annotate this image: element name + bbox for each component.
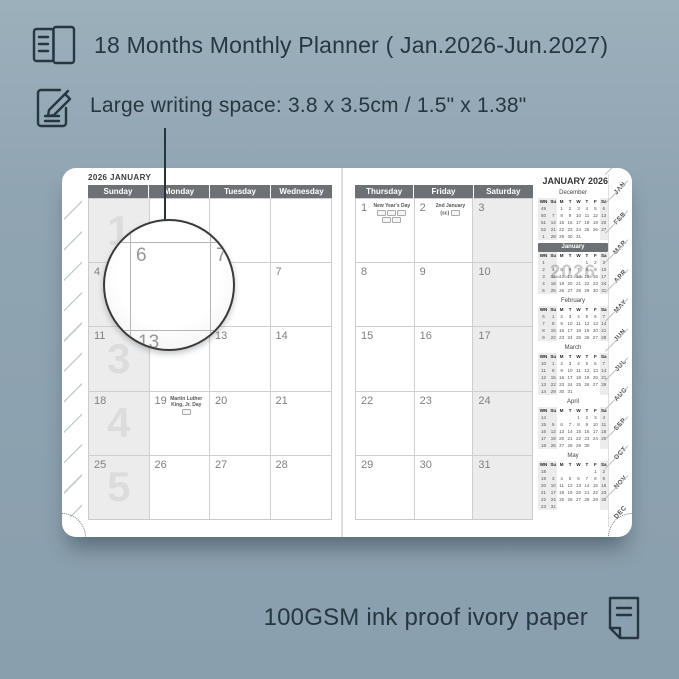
mini-day-cell: 16 — [557, 327, 565, 334]
mini-header-cell: WN — [538, 198, 549, 205]
calendar-cell: 1New Year's Day — [356, 198, 415, 262]
mini-day-cell: 4 — [549, 266, 557, 273]
mini-day-cell — [557, 468, 565, 475]
mini-day-cell: 30 — [557, 388, 565, 395]
page-edge-hatching — [64, 190, 82, 517]
mini-day-cell: 52 — [538, 226, 549, 233]
calendar-cell: 418 — [89, 391, 150, 455]
left-page: 2026 JANUARY SundayMondayTuesdayWednesda… — [62, 168, 342, 537]
mini-day-cell: 7 — [600, 360, 608, 367]
mini-header-cell: F — [591, 198, 599, 205]
mini-day-cell: 2 — [557, 313, 565, 320]
mini-month-grid: WNSuMTWTFSa11232456789103111213141516174… — [538, 252, 608, 294]
planner-book-icon — [30, 24, 78, 66]
mini-day-cell: 51 — [538, 219, 549, 226]
mini-day-cell — [557, 414, 565, 421]
mini-day-cell: 13 — [557, 428, 565, 435]
mini-day-cell: 13 — [538, 381, 549, 388]
mini-header-cell: T — [583, 306, 591, 313]
mini-day-cell: 13 — [566, 273, 574, 280]
mini-day-cell — [583, 503, 591, 510]
mini-day-cell: 9 — [538, 334, 549, 341]
mini-day-cell: 28 — [549, 233, 557, 240]
mini-day-cell: 10 — [591, 421, 599, 428]
mini-header-cell: M — [557, 306, 565, 313]
mini-day-cell: 14 — [538, 388, 549, 395]
mini-day-cell: 17 — [591, 428, 599, 435]
paper-sheet-icon — [603, 594, 645, 642]
mini-day-cell: 49 — [538, 205, 549, 212]
mini-day-cell: 8 — [574, 421, 582, 428]
mini-day-cell: 10 — [600, 266, 608, 273]
mini-day-cell: 20 — [538, 482, 549, 489]
mini-month: AprilWNSuMTWTFSa141234155678910111612131… — [538, 398, 608, 449]
mini-day-cell: 6 — [566, 266, 574, 273]
mini-day-cell: 27 — [574, 496, 582, 503]
mini-header-cell: Su — [549, 407, 557, 414]
mini-day-cell: 15 — [538, 421, 549, 428]
mini-day-cell: 24 — [566, 334, 574, 341]
mini-day-cell: 30 — [583, 442, 591, 449]
mini-day-cell: 8 — [591, 475, 599, 482]
mini-day-cell: 31 — [566, 388, 574, 395]
mini-day-cell: 26 — [583, 381, 591, 388]
mini-day-cell: 11 — [574, 367, 582, 374]
mini-day-cell: 29 — [591, 496, 599, 503]
mini-day-cell: 19 — [583, 327, 591, 334]
mini-day-cell: 21 — [600, 327, 608, 334]
mini-day-cell: 19 — [557, 280, 565, 287]
calendar-cell: 7 — [271, 262, 332, 326]
mini-day-cell: 25 — [557, 496, 565, 503]
mini-day-cell: 23 — [591, 280, 599, 287]
mini-day-cell: 23 — [566, 226, 574, 233]
mini-day-cell: 12 — [538, 374, 549, 381]
mini-day-cell: 9 — [557, 320, 565, 327]
mini-day-cell: 18 — [538, 442, 549, 449]
mini-header-cell: M — [557, 198, 565, 205]
mini-day-cell: 29 — [557, 233, 565, 240]
mini-day-cell: 3 — [538, 273, 549, 280]
mini-day-cell — [566, 414, 574, 421]
mini-day-cell: 17 — [574, 219, 582, 226]
mini-day-cell: 5 — [583, 313, 591, 320]
mini-day-cell: 20 — [600, 219, 608, 226]
mini-day-cell — [574, 259, 582, 266]
date-number: 8 — [361, 266, 367, 278]
mini-day-cell: 5 — [557, 266, 565, 273]
mini-day-cell: 22 — [591, 489, 599, 496]
mini-day-cell: 1 — [549, 313, 557, 320]
mini-day-cell: 17 — [549, 489, 557, 496]
mini-day-cell: 7 — [549, 212, 557, 219]
right-week-grid: 1New Year's Day 22nd January (sc) 389101… — [355, 198, 533, 520]
magnified-grid-line — [105, 242, 233, 243]
date-number: 16 — [420, 330, 432, 342]
mini-month-grid: WNSuMTWTFSa14123415567891011161213141516… — [538, 407, 608, 449]
calendar-cell: 31 — [473, 455, 532, 519]
right-day-header-row: ThursdayFridaySaturday — [355, 185, 533, 198]
mini-day-cell: 15 — [557, 219, 565, 226]
mini-month-name: April — [538, 398, 608, 407]
mini-day-cell — [600, 388, 608, 395]
mini-day-cell: 14 — [600, 367, 608, 374]
mini-month-name: March — [538, 344, 608, 353]
mini-day-cell: 8 — [549, 367, 557, 374]
mini-header-cell: F — [591, 252, 599, 259]
mini-day-cell — [549, 414, 557, 421]
mini-day-cell: 7 — [538, 320, 549, 327]
calendar-cell: 14 — [271, 326, 332, 390]
mini-day-cell: 10 — [549, 482, 557, 489]
mini-day-cell: 4 — [600, 414, 608, 421]
mini-month-name: January — [538, 243, 608, 252]
mini-day-cell — [566, 468, 574, 475]
mini-day-cell: 8 — [557, 212, 565, 219]
mini-day-cell: 4 — [574, 313, 582, 320]
mini-header-cell: WN — [538, 407, 549, 414]
mini-day-cell: 2 — [557, 360, 565, 367]
mini-day-cell: 18 — [574, 374, 582, 381]
mini-month-grid: WNSuMTWTFSa18121934567892010111213141516… — [538, 461, 608, 510]
date-number: 20 — [215, 395, 227, 407]
mini-day-cell: 11 — [574, 320, 582, 327]
date-number: 17 — [478, 330, 490, 342]
month-tab-strip: JANFEBMARAPRMAYJUNJULAUGSEPOCTNOVDEC — [608, 174, 632, 527]
mini-day-cell — [557, 259, 565, 266]
day-header: Friday — [414, 185, 473, 198]
mini-calendar-list: DecemberWNSuMTWTFSa491234565078910111213… — [538, 189, 608, 510]
magnified-date: 14 — [217, 332, 235, 351]
magnified-date: 6 — [136, 245, 147, 267]
mini-day-cell — [600, 233, 608, 240]
mini-header-cell: T — [566, 407, 574, 414]
mini-day-cell: 22 — [583, 280, 591, 287]
mini-day-cell: 28 — [574, 287, 582, 294]
mini-header-cell: F — [591, 407, 599, 414]
date-number: 25 — [94, 459, 106, 471]
mini-header-cell: T — [566, 198, 574, 205]
calendar-cell: 9 — [415, 262, 474, 326]
mini-header-cell: Su — [549, 198, 557, 205]
mini-day-cell: 13 — [574, 482, 582, 489]
mini-header-cell: W — [574, 353, 582, 360]
date-number: 24 — [478, 395, 490, 407]
mini-day-cell: 23 — [557, 381, 565, 388]
mini-day-cell: 26 — [566, 496, 574, 503]
mini-header-cell: W — [574, 198, 582, 205]
mini-day-cell: 24 — [566, 381, 574, 388]
date-number: 4 — [94, 266, 100, 278]
mini-header-cell: Su — [549, 461, 557, 468]
mini-day-cell: 5 — [538, 287, 549, 294]
mini-header-cell: T — [566, 252, 574, 259]
mini-day-cell: 20 — [574, 489, 582, 496]
paper-feature-text: 100GSM ink proof ivory paper — [264, 604, 588, 632]
mini-day-cell: 22 — [557, 226, 565, 233]
calendar-cell: 3 — [473, 198, 532, 262]
mini-day-cell: 21 — [574, 280, 582, 287]
mini-day-cell: 7 — [583, 475, 591, 482]
calendar-cell: 525 — [89, 455, 150, 519]
mini-header-cell: W — [574, 461, 582, 468]
holiday-region-badge — [377, 210, 386, 217]
mini-day-cell: 11 — [549, 273, 557, 280]
mini-day-cell: 21 — [566, 435, 574, 442]
mini-day-cell: 11 — [583, 212, 591, 219]
date-number: 2 — [420, 202, 426, 214]
holiday-region-badge — [387, 210, 396, 217]
mini-day-cell: 20 — [557, 435, 565, 442]
date-number: 23 — [420, 395, 432, 407]
mini-day-cell: 23 — [538, 503, 549, 510]
date-number: 22 — [361, 395, 373, 407]
mini-day-cell: 17 — [566, 374, 574, 381]
mini-day-cell — [574, 503, 582, 510]
mini-header-cell: F — [591, 306, 599, 313]
mini-month: MayWNSuMTWTFSa18121934567892010111213141… — [538, 452, 608, 510]
mini-header-cell: T — [566, 461, 574, 468]
mini-month-name: May — [538, 452, 608, 461]
date-number: 28 — [276, 459, 288, 471]
mini-day-cell: 30 — [566, 233, 574, 240]
mini-month-name: December — [538, 189, 608, 198]
mini-day-cell: 22 — [538, 496, 549, 503]
page-gutter — [341, 168, 343, 537]
mini-day-cell: 10 — [538, 360, 549, 367]
day-header: Thursday — [355, 185, 414, 198]
mini-day-cell: 5 — [566, 475, 574, 482]
mini-day-cell: 26 — [557, 287, 565, 294]
holiday-label: Martin Luther King, Jr. Day — [166, 396, 208, 416]
mini-day-cell: 30 — [591, 287, 599, 294]
mini-header-cell: W — [574, 407, 582, 414]
mini-day-cell — [557, 503, 565, 510]
mini-day-cell: 26 — [591, 226, 599, 233]
mini-day-cell: 15 — [591, 482, 599, 489]
mini-day-cell: 24 — [574, 226, 582, 233]
mini-day-cell: 24 — [600, 280, 608, 287]
date-number: 10 — [478, 266, 490, 278]
mini-calendar-column: JANUARY 2026 DecemberWNSuMTWTFSa49123456… — [538, 176, 608, 522]
mini-header-cell: Su — [549, 306, 557, 313]
mini-day-cell: 16 — [538, 428, 549, 435]
mini-header-cell: T — [583, 353, 591, 360]
calendar-cell: 27 — [210, 455, 271, 519]
mini-day-cell: 10 — [574, 212, 582, 219]
mini-header-cell: F — [591, 353, 599, 360]
mini-header-cell: T — [583, 461, 591, 468]
mini-day-cell: 14 — [600, 320, 608, 327]
mini-day-cell: 16 — [566, 219, 574, 226]
mini-month-grid: WNSuMTWTFSa49123456507891011121351141516… — [538, 198, 608, 240]
mini-day-cell: 18 — [583, 219, 591, 226]
mini-month: FebruaryWNSuMTWTFSa612345677891011121314… — [538, 297, 608, 341]
mini-day-cell: 21 — [538, 489, 549, 496]
mini-day-cell: 3 — [566, 313, 574, 320]
mini-day-cell: 16 — [583, 428, 591, 435]
mini-header-cell: M — [557, 353, 565, 360]
day-header: Monday — [149, 185, 210, 198]
mini-month-grid: WNSuMTWTFSa10123456711891011121314121516… — [538, 353, 608, 395]
mini-day-cell: 27 — [557, 442, 565, 449]
mini-day-cell: 25 — [583, 226, 591, 233]
mini-day-cell: 9 — [566, 212, 574, 219]
mini-day-cell: 14 — [566, 428, 574, 435]
mini-month-name: February — [538, 297, 608, 306]
magnified-grid-line — [105, 330, 233, 331]
writing-pencil-icon — [32, 82, 74, 130]
calendar-cell: 28 — [271, 455, 332, 519]
mini-day-cell — [583, 468, 591, 475]
mini-header-cell: W — [574, 252, 582, 259]
date-number: 29 — [361, 459, 373, 471]
mini-day-cell: 2 — [583, 414, 591, 421]
mini-day-cell: 24 — [591, 435, 599, 442]
calendar-cell: 24 — [473, 391, 532, 455]
date-number: 21 — [276, 395, 288, 407]
date-number: 18 — [94, 395, 106, 407]
mini-header-cell: M — [557, 407, 565, 414]
feature-row: Large writing space: 3.8 x 3.5cm / 1.5" … — [32, 82, 526, 130]
holiday-label: New Year's Day — [372, 203, 412, 224]
mini-day-cell: 19 — [566, 489, 574, 496]
date-number: 14 — [276, 330, 288, 342]
mini-header-cell: WN — [538, 306, 549, 313]
mini-header-cell: WN — [538, 353, 549, 360]
mini-header-cell: T — [583, 198, 591, 205]
mini-header-cell: Sa — [600, 306, 608, 313]
date-number: 1 — [361, 202, 367, 214]
mini-day-cell: 22 — [549, 334, 557, 341]
mini-day-cell: 10 — [566, 367, 574, 374]
calendar-cell — [271, 198, 332, 262]
mini-day-cell: 12 — [583, 367, 591, 374]
mini-day-cell: 6 — [591, 360, 599, 367]
mini-day-cell: 12 — [557, 273, 565, 280]
mini-day-cell: 26 — [583, 334, 591, 341]
mini-day-cell: 19 — [591, 219, 599, 226]
mini-day-cell: 22 — [574, 435, 582, 442]
mini-day-cell: 27 — [591, 381, 599, 388]
mini-day-cell: 9 — [600, 475, 608, 482]
mini-day-cell: 17 — [566, 327, 574, 334]
mini-day-cell: 18 — [557, 489, 565, 496]
mini-day-cell: 14 — [574, 273, 582, 280]
holiday-region-badge — [382, 217, 391, 224]
mini-day-cell: 27 — [566, 287, 574, 294]
calendar-cell: 30 — [415, 455, 474, 519]
mini-month-grid: WNSuMTWTFSa61234567789101112131481516171… — [538, 306, 608, 341]
holiday-label: 2nd January (sc) — [431, 203, 471, 217]
calendar-cell: 20 — [210, 391, 271, 455]
mini-day-cell: 20 — [591, 327, 599, 334]
mini-day-cell: 19 — [549, 435, 557, 442]
mini-day-cell: 13 — [600, 212, 608, 219]
mini-day-cell: 28 — [583, 496, 591, 503]
mini-day-cell: 29 — [549, 388, 557, 395]
mini-day-cell — [583, 233, 591, 240]
mini-day-cell: 31 — [549, 503, 557, 510]
mini-day-cell: 6 — [600, 205, 608, 212]
mini-day-cell: 9 — [557, 367, 565, 374]
mini-day-cell: 1 — [583, 259, 591, 266]
mini-day-cell: 11 — [538, 367, 549, 374]
right-month-grid: ThursdayFridaySaturday 1New Year's Day 2… — [355, 185, 533, 520]
callout-connector-line — [164, 128, 166, 220]
mini-day-cell: 6 — [538, 313, 549, 320]
mini-day-cell: 20 — [566, 280, 574, 287]
holiday-region-badge — [182, 409, 191, 416]
mini-day-cell — [583, 388, 591, 395]
mini-day-cell: 2 — [538, 266, 549, 273]
mini-day-cell: 16 — [557, 374, 565, 381]
mini-day-cell — [591, 233, 599, 240]
mini-day-cell: 13 — [591, 320, 599, 327]
mini-day-cell: 1 — [538, 259, 549, 266]
mini-header-cell: WN — [538, 252, 549, 259]
day-header: Saturday — [474, 185, 533, 198]
mini-month: JanuaryWNSuMTWTFSa1123245678910311121314… — [538, 243, 608, 294]
mini-day-cell: 14 — [549, 219, 557, 226]
mini-day-cell: 3 — [549, 475, 557, 482]
mini-day-cell: 11 — [600, 421, 608, 428]
mini-day-cell: 4 — [583, 205, 591, 212]
mini-day-cell: 26 — [549, 442, 557, 449]
mini-day-cell: 23 — [557, 334, 565, 341]
mini-day-cell: 13 — [591, 367, 599, 374]
mini-day-cell — [549, 259, 557, 266]
mini-header-cell: T — [583, 252, 591, 259]
mini-day-cell: 25 — [574, 381, 582, 388]
calendar-cell: 16 — [415, 326, 474, 390]
calendar-cell: 8 — [356, 262, 415, 326]
mini-day-cell: 15 — [583, 273, 591, 280]
mini-day-cell: 19 — [538, 475, 549, 482]
mini-day-cell: 28 — [600, 381, 608, 388]
mini-day-cell — [549, 205, 557, 212]
date-number: 7 — [276, 266, 282, 278]
mini-day-cell: 17 — [600, 273, 608, 280]
mini-day-cell: 8 — [583, 266, 591, 273]
day-header: Sunday — [88, 185, 149, 198]
mini-day-cell: 28 — [566, 442, 574, 449]
mini-day-cell: 3 — [574, 205, 582, 212]
corner-perforation-dots — [62, 513, 86, 537]
mini-day-cell: 1 — [538, 233, 549, 240]
mini-day-cell: 23 — [583, 435, 591, 442]
mini-day-cell: 3 — [591, 414, 599, 421]
mini-day-cell: 21 — [583, 489, 591, 496]
mini-day-cell: 15 — [574, 428, 582, 435]
calendar-cell: 19Martin Luther King, Jr. Day — [150, 391, 211, 455]
date-number: 3 — [478, 202, 484, 214]
calendar-cell: 15 — [356, 326, 415, 390]
mini-day-cell: 6 — [557, 421, 565, 428]
date-number: 26 — [155, 459, 167, 471]
mini-day-cell: 15 — [549, 327, 557, 334]
mini-day-cell: 6 — [574, 475, 582, 482]
mini-day-cell — [600, 442, 608, 449]
mini-day-cell: 2 — [600, 468, 608, 475]
date-number: 27 — [215, 459, 227, 471]
mini-header-cell: Sa — [600, 252, 608, 259]
date-number: 31 — [478, 459, 490, 471]
mini-day-cell — [566, 259, 574, 266]
mini-day-cell: 4 — [574, 360, 582, 367]
magnified-date: 7 — [216, 245, 227, 267]
mini-day-cell: 8 — [549, 320, 557, 327]
